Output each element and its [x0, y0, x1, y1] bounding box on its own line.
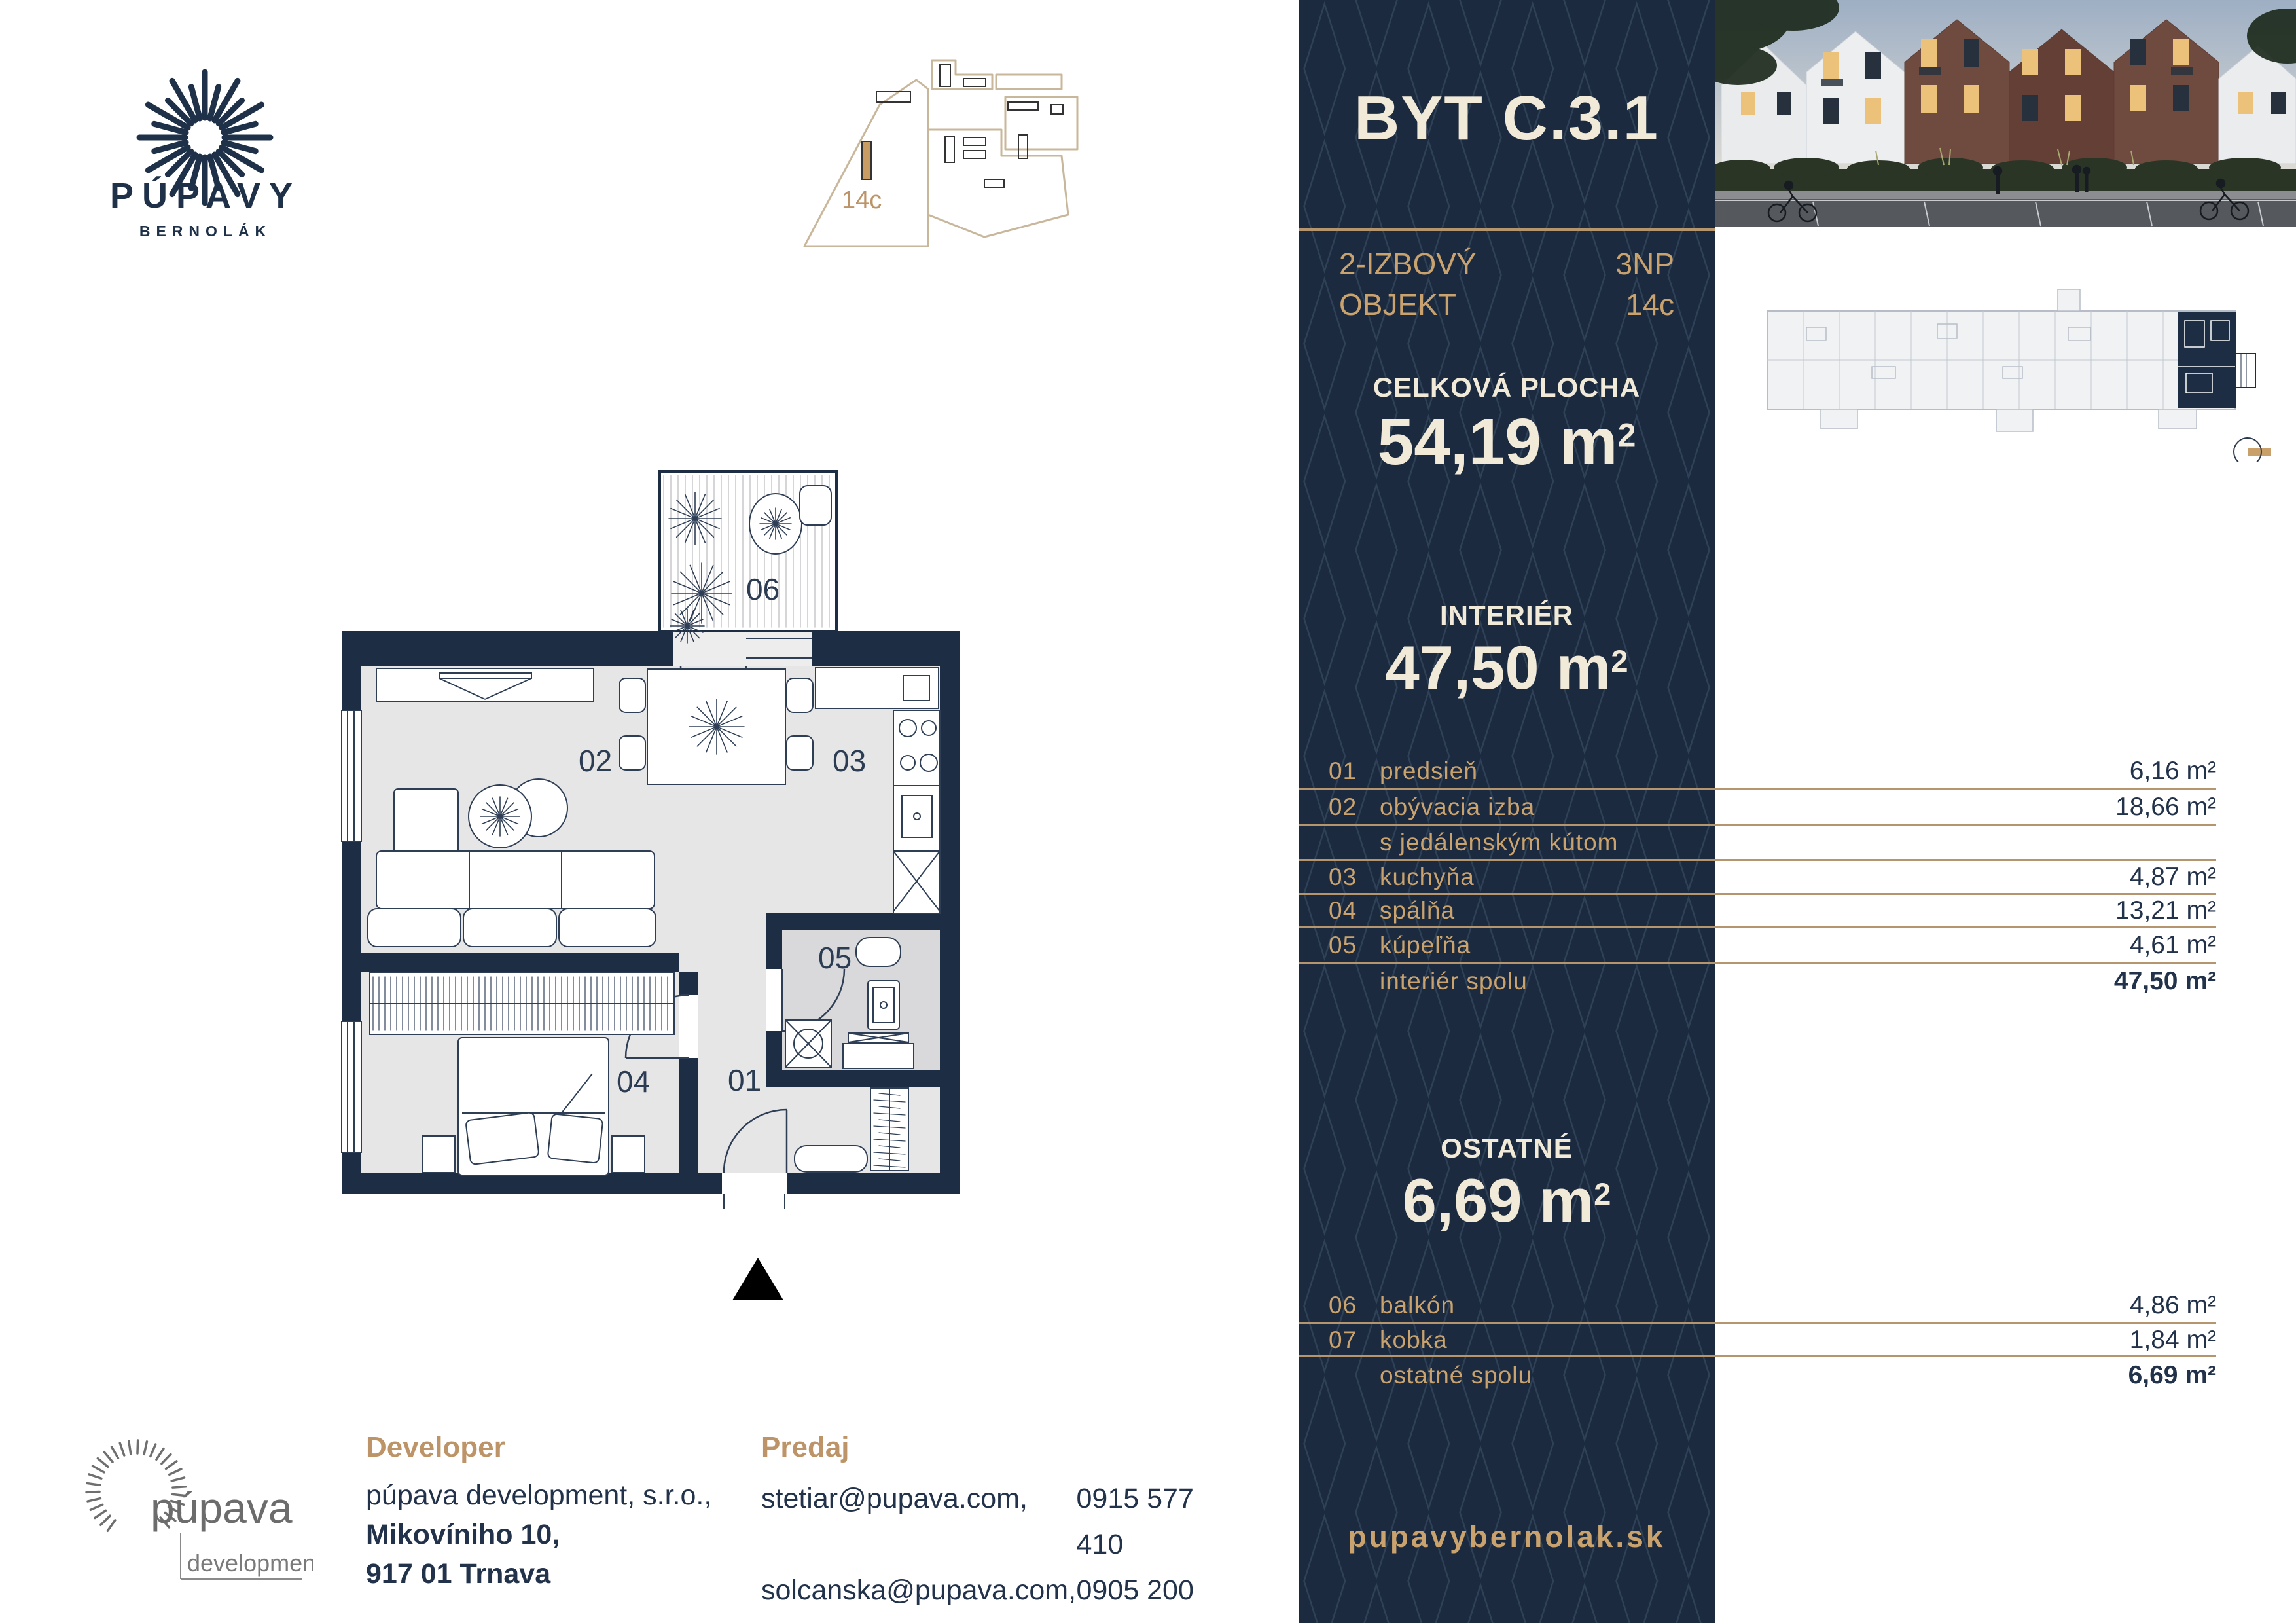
site-label-14c: 14c: [842, 187, 882, 214]
room-label-living: 02: [579, 744, 612, 778]
website-link[interactable]: pupavybernolak.sk: [1299, 1519, 1715, 1554]
apartment-floorplan: 06 02 03 04 01 05: [314, 432, 982, 1401]
table-row: s jedálenským kútom: [1299, 826, 2216, 861]
interior-area-table: 01predsieň6,16 m² 02obývacia izba18,66 m…: [1299, 754, 2216, 999]
room-label-bedroom: 04: [617, 1065, 650, 1099]
developer-company: púpava development, s.r.o.,: [366, 1476, 711, 1515]
total-area-value: 54,19 m2: [1299, 405, 1715, 480]
strip-compass-icon: [2234, 438, 2271, 462]
developer-city: 917 01 Trnava: [366, 1554, 711, 1594]
flat-location: 3NP 14c: [1616, 244, 1674, 325]
flat-type-row: 2-IZBOVÝ OBJEKT 3NP 14c: [1299, 244, 1715, 325]
total-area-label: CELKOVÁ PLOCHA: [1299, 372, 1715, 403]
contact-email[interactable]: solcanska@pupava.com,: [761, 1567, 1077, 1623]
floor-overview-plan: [1761, 265, 2271, 462]
sales-block: Predaj stetiar@pupava.com, 0915 577 410 …: [761, 1431, 1246, 1623]
room-label-bath: 05: [818, 941, 852, 975]
divider-line: [1299, 228, 1715, 231]
developer-heading: Developer: [366, 1431, 711, 1464]
table-row: 06balkón4,86 m²: [1299, 1288, 2216, 1324]
contact-row: stetiar@pupava.com, 0915 577 410: [761, 1476, 1246, 1567]
room-label-kitchen: 03: [833, 744, 866, 778]
room-label-balcony: 06: [746, 572, 780, 606]
table-row-total: ostatné spolu6,69 m²: [1299, 1357, 2216, 1394]
interior-area-value: 47,50 m2: [1299, 632, 1715, 703]
table-row: 05kúpeľňa4,61 m²: [1299, 928, 2216, 964]
room-label-hall: 01: [728, 1063, 761, 1097]
table-row-total: interiér spolu47,50 m²: [1299, 964, 2216, 999]
dev-logo-main: púpava: [151, 1484, 293, 1532]
flat-type: 2-IZBOVÝ OBJEKT: [1339, 244, 1477, 325]
other-area-value: 6,69 m2: [1299, 1165, 1715, 1236]
highlighted-unit: [2178, 312, 2255, 408]
contact-phone: 0905 200 322: [1077, 1567, 1246, 1623]
table-row: 04spálňa13,21 m²: [1299, 895, 2216, 928]
developer-block: Developer púpava development, s.r.o., Mi…: [366, 1431, 711, 1594]
table-row: 07kobka1,84 m²: [1299, 1324, 2216, 1357]
balcony: [660, 471, 836, 631]
table-row: 01predsieň6,16 m²: [1299, 754, 2216, 790]
sales-heading: Predaj: [761, 1431, 1246, 1464]
contact-email[interactable]: stetiar@pupava.com,: [761, 1476, 1077, 1567]
flat-datasheet: PÚPAVY BERNOLÁK 14c: [0, 0, 2296, 1623]
dev-logo-sub: development: [187, 1550, 313, 1577]
other-area-table: 06balkón4,86 m² 07kobka1,84 m² ostatné s…: [1299, 1288, 2216, 1394]
contact-row: solcanska@pupava.com, 0905 200 322: [761, 1567, 1246, 1623]
brand-title: PÚPAVY: [75, 175, 336, 216]
developer-street: Mikovíniho 10,: [366, 1515, 711, 1554]
table-row: 03kuchyňa4,87 m²: [1299, 861, 2216, 895]
contact-phone: 0915 577 410: [1077, 1476, 1246, 1567]
other-area-label: OSTATNÉ: [1299, 1133, 1715, 1164]
table-row: 02obývacia izba18,66 m²: [1299, 790, 2216, 826]
brand-subtitle: BERNOLÁK: [75, 223, 336, 240]
entrance-arrow-icon: [732, 1258, 783, 1300]
flat-title: BYT C.3.1: [1299, 82, 1715, 155]
building-photo: [1715, 0, 2296, 227]
interior-area-label: INTERIÉR: [1299, 600, 1715, 631]
site-plan-sketch: 14c: [788, 51, 1083, 261]
pupava-development-logo: púpava development: [77, 1438, 313, 1588]
